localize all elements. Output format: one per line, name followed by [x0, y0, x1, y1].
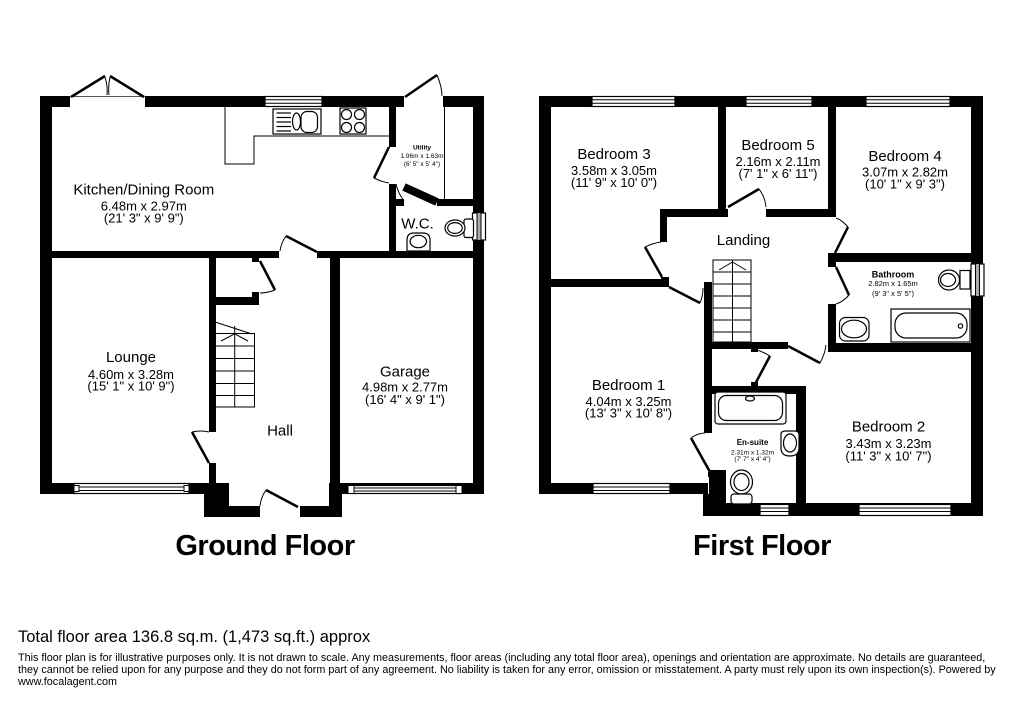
svg-text:(16' 4" x 9' 1"): (16' 4" x 9' 1")	[365, 392, 445, 407]
svg-text:(15' 1" x 10' 9"): (15' 1" x 10' 9")	[87, 379, 174, 394]
svg-text:(6' 5" x 5' 4"): (6' 5" x 5' 4")	[404, 161, 440, 168]
svg-text:(13' 3" x 10' 8"): (13' 3" x 10' 8")	[585, 406, 672, 421]
svg-text:(10' 1" x 9' 3"): (10' 1" x 9' 3")	[865, 177, 945, 192]
svg-text:(7' 1" x 6' 11"): (7' 1" x 6' 11")	[739, 166, 818, 181]
svg-text:they cannot be relied upon for: they cannot be relied upon for any purpo…	[18, 664, 996, 676]
svg-text:(11' 3" x 10' 7"): (11' 3" x 10' 7")	[845, 449, 931, 464]
svg-text:Lounge: Lounge	[106, 349, 156, 366]
svg-text:Total floor area 136.8 sq.m. (: Total floor area 136.8 sq.m. (1,473 sq.f…	[18, 628, 371, 646]
svg-text:Landing: Landing	[717, 232, 770, 249]
svg-text:Bedroom 2: Bedroom 2	[852, 419, 925, 436]
svg-text:This floor plan is for illustr: This floor plan is for illustrative purp…	[18, 652, 985, 664]
svg-text:1.96m x 1.63m: 1.96m x 1.63m	[401, 153, 444, 160]
svg-text:Hall: Hall	[267, 423, 293, 440]
svg-text:(7' 7" x 4' 4"): (7' 7" x 4' 4")	[734, 456, 770, 463]
svg-text:(21' 3" x 9' 9"): (21' 3" x 9' 9")	[104, 211, 184, 226]
svg-text:Kitchen/Dining Room: Kitchen/Dining Room	[73, 182, 214, 199]
svg-text:Garage: Garage	[380, 364, 430, 381]
svg-text:W.C.: W.C.	[401, 216, 434, 233]
svg-text:Bedroom 1: Bedroom 1	[592, 377, 665, 394]
svg-text:Ground Floor: Ground Floor	[175, 530, 354, 562]
svg-text:(11' 9" x 10' 0"): (11' 9" x 10' 0")	[571, 175, 657, 190]
svg-text:2.82m x 1.65m: 2.82m x 1.65m	[868, 279, 918, 288]
svg-text:Utility: Utility	[413, 145, 431, 152]
svg-text:www.focalagent.com: www.focalagent.com	[17, 676, 117, 688]
svg-text:First Floor: First Floor	[693, 530, 831, 562]
svg-text:Bedroom 3: Bedroom 3	[577, 146, 650, 163]
svg-text:(9' 3" x 5' 5"): (9' 3" x 5' 5")	[872, 289, 914, 298]
svg-text:Bedroom 5: Bedroom 5	[741, 137, 814, 154]
svg-text:Bedroom 4: Bedroom 4	[868, 148, 941, 165]
svg-text:Bathroom: Bathroom	[872, 270, 915, 280]
svg-text:En-suite: En-suite	[737, 438, 769, 447]
